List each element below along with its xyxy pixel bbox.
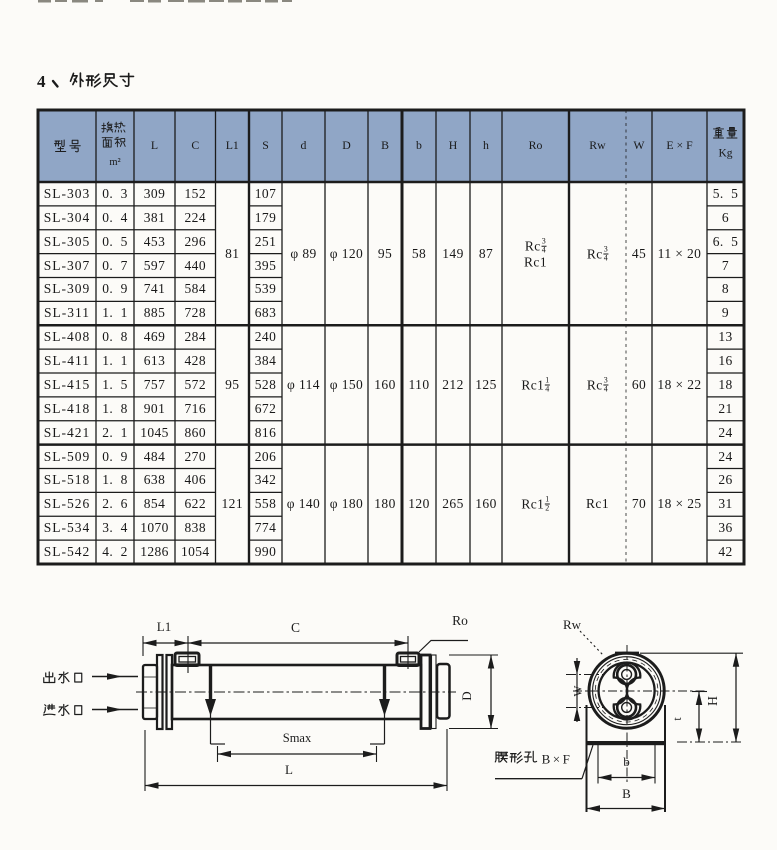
svg-text:B: B xyxy=(622,786,631,801)
svg-text:Smax: Smax xyxy=(283,731,312,745)
svg-text:D: D xyxy=(459,691,474,700)
svg-text:L: L xyxy=(285,762,293,777)
svg-text:C: C xyxy=(291,620,300,635)
svg-text:B×F: B×F xyxy=(542,752,573,767)
svg-text:Rw: Rw xyxy=(563,617,582,632)
svg-text:Ro: Ro xyxy=(452,613,468,628)
svg-text:W: W xyxy=(573,685,585,696)
svg-text:t: t xyxy=(670,717,684,721)
svg-text:H: H xyxy=(705,696,720,706)
svg-text:L1: L1 xyxy=(157,619,171,634)
svg-text:b: b xyxy=(623,754,630,769)
